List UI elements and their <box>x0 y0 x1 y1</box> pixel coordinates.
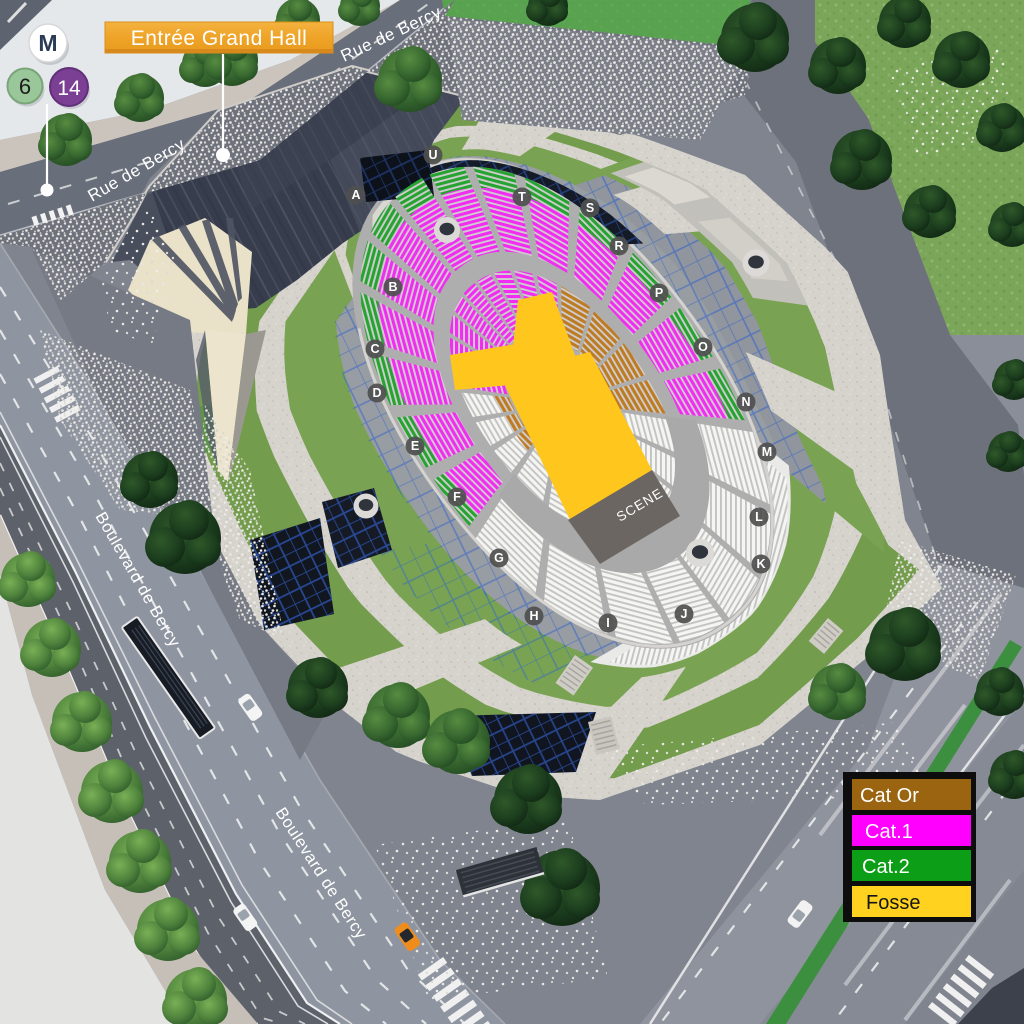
svg-text:Cat.1: Cat.1 <box>865 821 913 843</box>
svg-text:N: N <box>741 395 750 409</box>
svg-text:Cat.2: Cat.2 <box>862 856 910 878</box>
svg-text:S: S <box>586 201 594 215</box>
svg-text:A: A <box>351 188 360 202</box>
svg-text:6: 6 <box>19 74 31 99</box>
svg-text:H: H <box>529 609 538 623</box>
svg-text:R: R <box>614 239 623 253</box>
svg-text:I: I <box>606 616 609 630</box>
svg-text:T: T <box>518 190 526 204</box>
svg-text:D: D <box>372 386 381 400</box>
svg-text:O: O <box>698 340 708 354</box>
svg-text:J: J <box>681 607 688 621</box>
svg-text:K: K <box>756 557 765 571</box>
svg-text:M: M <box>762 445 772 459</box>
svg-text:Cat Or: Cat Or <box>860 785 919 807</box>
svg-text:U: U <box>428 148 437 162</box>
svg-text:L: L <box>755 510 763 524</box>
svg-text:Fosse: Fosse <box>866 892 920 914</box>
svg-text:M: M <box>38 30 57 56</box>
svg-text:G: G <box>494 551 504 565</box>
svg-text:F: F <box>453 490 461 504</box>
svg-text:14: 14 <box>57 77 81 100</box>
svg-text:C: C <box>370 342 379 356</box>
svg-text:P: P <box>655 286 663 300</box>
svg-text:B: B <box>388 280 397 294</box>
svg-text:E: E <box>411 439 419 453</box>
svg-text:Entrée Grand Hall: Entrée Grand Hall <box>131 27 308 50</box>
